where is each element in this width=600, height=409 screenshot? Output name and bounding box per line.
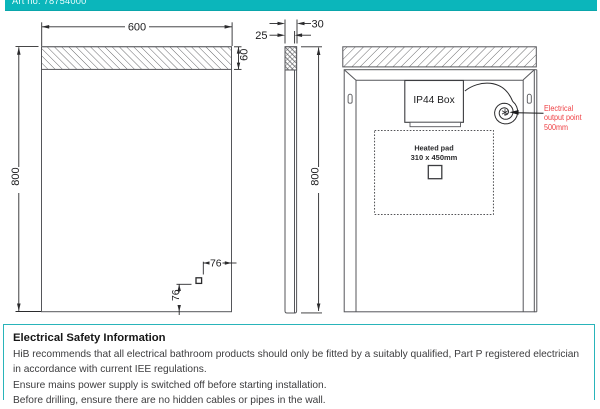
svg-text:76: 76 — [170, 289, 182, 301]
svg-text:25: 25 — [255, 30, 267, 42]
svg-text:310 x 450mm: 310 x 450mm — [411, 153, 458, 162]
svg-text:60: 60 — [239, 49, 251, 61]
svg-text:30: 30 — [312, 18, 324, 30]
svg-text:76: 76 — [210, 258, 222, 270]
svg-text:800: 800 — [310, 167, 322, 185]
svg-text:800: 800 — [10, 167, 22, 185]
svg-text:IP44 Box: IP44 Box — [413, 95, 454, 106]
svg-text:600: 600 — [128, 22, 146, 34]
svg-text:Heated pad: Heated pad — [414, 144, 453, 153]
